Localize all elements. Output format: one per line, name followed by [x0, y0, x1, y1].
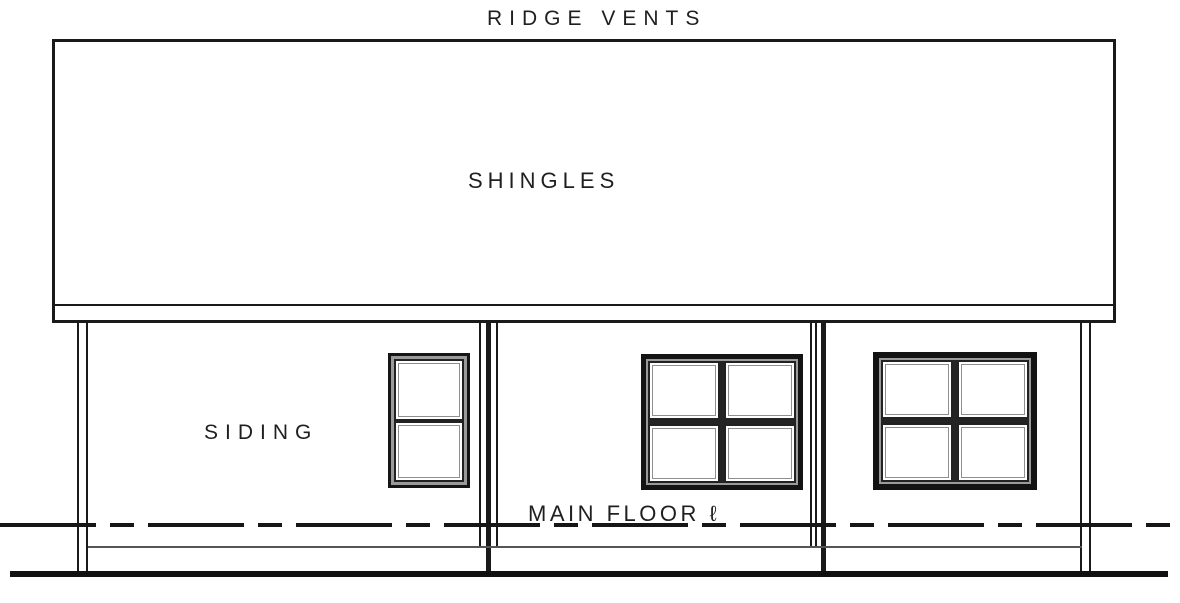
window-center-four-pane — [641, 354, 803, 490]
window-pane — [957, 360, 1029, 419]
wall-divider-1-trim-left — [479, 322, 481, 547]
fascia-bottom-line — [52, 320, 1116, 323]
wall-divider-2-trim-left — [810, 322, 812, 547]
wall-divider-1-post — [486, 322, 491, 576]
left-corner-board-outer — [77, 322, 79, 574]
wall-divider-2-post — [821, 322, 826, 576]
shingles-label: SHINGLES — [468, 168, 619, 194]
elevation-drawing: RIDGE VENTS SHINGLES SIDING MAIN FLOOR ℓ — [0, 0, 1180, 603]
main-floor-label: MAIN FLOOR ℓ — [528, 501, 720, 527]
window-left-sashes — [394, 359, 464, 482]
window-pane — [724, 424, 796, 483]
wall-divider-1-trim-right — [496, 322, 498, 547]
ridge-line — [52, 39, 1116, 42]
window-pane — [881, 360, 953, 419]
window-pane — [648, 361, 720, 420]
right-corner-board-outer — [1089, 322, 1091, 574]
window-left-double-hung — [388, 353, 470, 488]
roof-right-edge — [1113, 39, 1116, 323]
window-center-sashes — [648, 361, 796, 483]
roof-left-edge — [52, 39, 55, 323]
fascia-top-line — [52, 304, 1116, 306]
right-corner-board-inner — [1080, 322, 1082, 574]
ridge-vents-label: RIDGE VENTS — [487, 7, 706, 31]
wall-divider-2-trim-mid — [815, 322, 817, 547]
ground-line — [10, 571, 1168, 577]
left-corner-board-inner — [86, 322, 88, 574]
window-pane — [648, 424, 720, 483]
window-pane — [724, 361, 796, 420]
window-pane — [957, 423, 1029, 482]
window-right-four-pane — [873, 352, 1037, 490]
window-pane — [394, 421, 464, 483]
siding-label: SIDING — [204, 421, 318, 445]
window-pane — [881, 423, 953, 482]
foundation-line — [88, 546, 1082, 548]
window-right-sashes — [881, 360, 1029, 482]
window-pane — [394, 359, 464, 421]
